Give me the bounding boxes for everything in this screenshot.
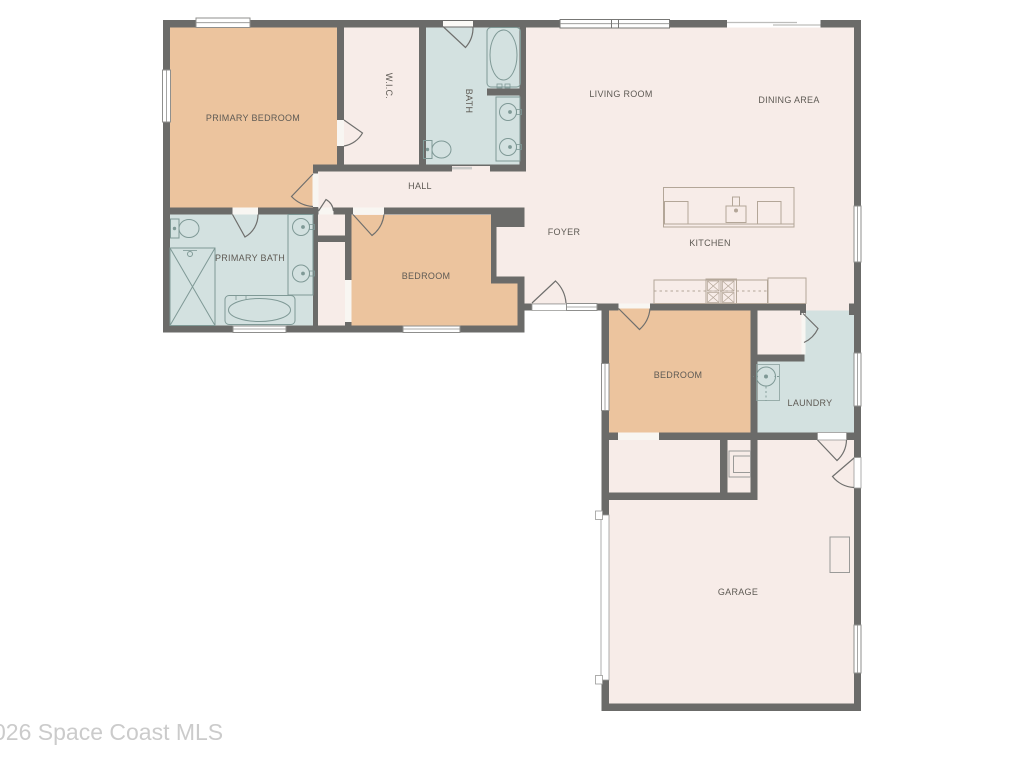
- svg-text:BATH: BATH: [464, 89, 474, 114]
- svg-text:GARAGE: GARAGE: [718, 587, 758, 597]
- svg-text:KITCHEN: KITCHEN: [689, 238, 731, 248]
- svg-text:PRIMARY BEDROOM: PRIMARY BEDROOM: [206, 113, 300, 123]
- svg-text:026 Space Coast MLS: 026 Space Coast MLS: [0, 719, 223, 745]
- svg-text:LIVING ROOM: LIVING ROOM: [589, 89, 652, 99]
- svg-text:W.I.C.: W.I.C.: [384, 73, 394, 99]
- svg-text:BEDROOM: BEDROOM: [654, 370, 703, 380]
- svg-text:BEDROOM: BEDROOM: [402, 271, 451, 281]
- svg-text:LAUNDRY: LAUNDRY: [788, 398, 833, 408]
- svg-text:HALL: HALL: [408, 181, 432, 191]
- svg-text:DINING AREA: DINING AREA: [758, 95, 819, 105]
- svg-text:PRIMARY BATH: PRIMARY BATH: [215, 253, 285, 263]
- svg-text:FOYER: FOYER: [548, 227, 581, 237]
